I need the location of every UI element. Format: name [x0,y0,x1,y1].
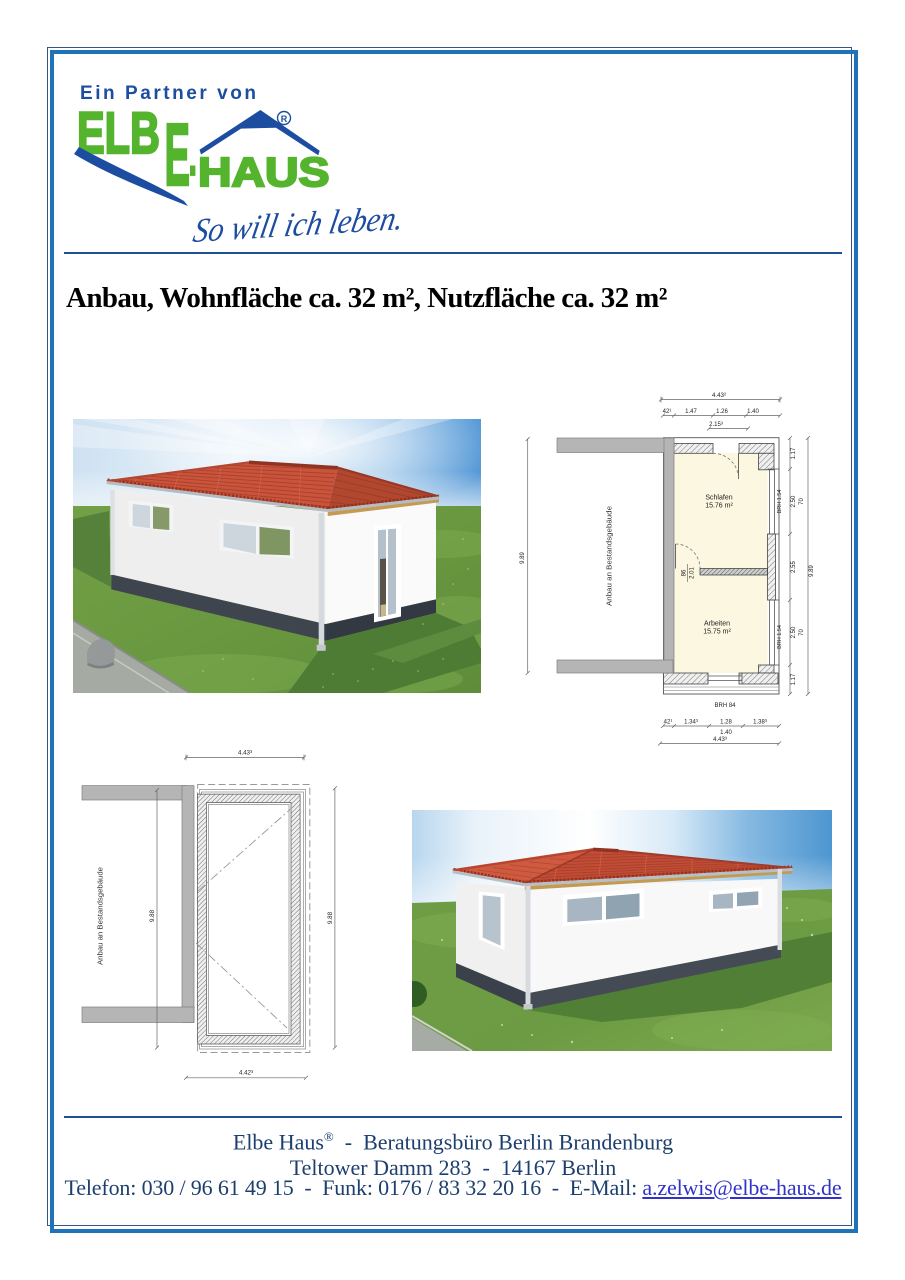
svg-text:1.28: 1.28 [720,720,732,726]
svg-text:2.01: 2.01 [690,567,696,579]
svg-text:1.40: 1.40 [720,730,732,736]
svg-text:Schlafen: Schlafen [705,495,732,502]
svg-text:4.43²: 4.43² [712,392,726,399]
svg-text:1.40: 1.40 [747,409,759,415]
svg-text:9.89: 9.89 [809,565,815,577]
svg-text:E: E [165,105,191,204]
svg-text:1.38³: 1.38³ [753,720,767,726]
svg-text:Anbau an Bestandsgebäude: Anbau an Bestandsgebäude [96,867,105,965]
svg-text:1.17: 1.17 [791,673,797,685]
svg-text:R: R [281,114,288,124]
svg-text:BRH 1.54: BRH 1.54 [777,490,783,514]
svg-text:1.17: 1.17 [791,447,797,459]
svg-text:86: 86 [682,569,688,576]
svg-text:1.34³: 1.34³ [684,720,698,726]
svg-text:So will ich leben.: So will ich leben. [190,199,407,250]
svg-text:15.76 m²: 15.76 m² [705,503,733,510]
svg-text:BRH 84: BRH 84 [714,703,736,709]
svg-text:2.50: 2.50 [791,495,797,507]
svg-text:4.43³: 4.43³ [238,750,252,757]
svg-text:70: 70 [799,498,805,505]
svg-text:15.75 m²: 15.75 m² [703,629,731,636]
svg-text:BRH 1.54: BRH 1.54 [777,625,783,649]
svg-text:4.43³: 4.43³ [713,737,727,743]
svg-text:1.47: 1.47 [685,409,697,415]
svg-text:70: 70 [799,629,805,636]
svg-text:9.88: 9.88 [149,909,156,922]
svg-text:Arbeiten: Arbeiten [704,621,730,628]
svg-text:HAUS: HAUS [198,149,330,195]
svg-text:1.26: 1.26 [716,409,728,415]
svg-text:42¹: 42¹ [664,720,673,726]
svg-text:Anbau an Bestandsgebäude: Anbau an Bestandsgebäude [605,506,614,606]
svg-text:42¹: 42¹ [663,409,672,415]
svg-text:9.89: 9.89 [520,552,526,564]
svg-text:2.15³: 2.15³ [709,422,723,428]
svg-text:9.88: 9.88 [327,911,334,924]
svg-text:2.55: 2.55 [791,561,797,573]
svg-text:4.42³: 4.42³ [239,1070,253,1077]
svg-text:2.50: 2.50 [791,626,797,638]
